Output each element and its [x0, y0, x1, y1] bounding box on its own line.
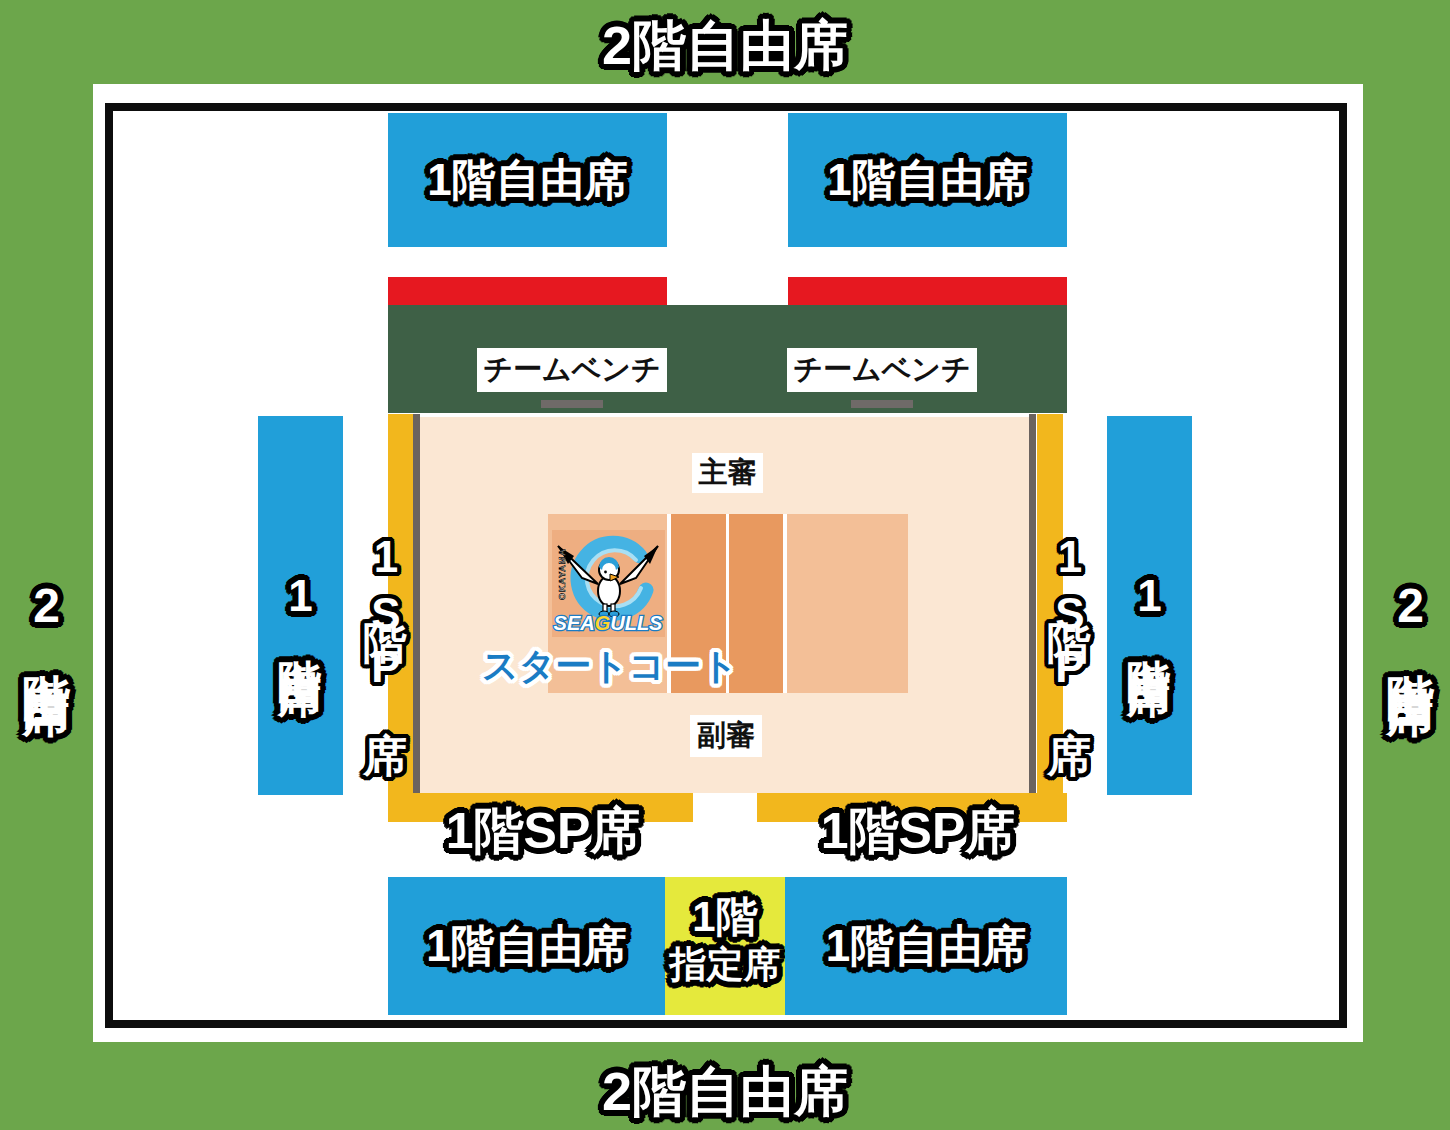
seat-label: 1階自由席 [427, 151, 627, 210]
red-strip-right [788, 277, 1067, 305]
assistant-referee-text: 副審 [697, 716, 755, 756]
logo-okayama-text: OKAYAMA [557, 548, 567, 600]
reserved-seat-label-line2: 指定席 [665, 941, 785, 989]
seat-block-floor1-reserved: 1階 指定席 [665, 877, 785, 1015]
team-bench-label-right: チームベンチ [787, 348, 977, 392]
seat-label: 1階自由席 [426, 917, 626, 976]
second-floor-label-left: 2階自由席 [14, 579, 78, 652]
seat-block-floor1-free-bottom-right: 1階自由席 [785, 877, 1067, 1015]
seat-label: 1階自由席 [827, 151, 1027, 210]
reserved-seat-label-line1: 1階 [665, 893, 785, 941]
sp-seat-label-bottom-right: 1階SP席 [788, 798, 1048, 865]
seat-label: 1階自由席 [271, 571, 330, 640]
logo-seagulls-text: SEAGULLS [554, 612, 664, 634]
sp-seat-label-right: 1階SP席 [1041, 532, 1100, 699]
red-strip-left [388, 277, 667, 305]
sp-seat-label-left: 1階SP席 [357, 532, 416, 699]
seat-block-floor1-free-top-right: 1階自由席 [788, 113, 1067, 247]
seagulls-logo-icon: OKAYAMA SEAGULLS [552, 530, 665, 637]
logo-sea: SEA [554, 612, 595, 634]
start-court-label: スタートコート [480, 642, 740, 691]
court-zone-right [787, 514, 908, 693]
chief-referee-label: 主審 [692, 453, 763, 493]
seat-block-floor1-free-left: 1階自由席 [258, 416, 343, 795]
seat-block-floor1-free-right: 1階自由席 [1107, 416, 1192, 795]
team-bench-text: チームベンチ [483, 350, 660, 390]
seat-block-floor1-free-top-left: 1階自由席 [388, 113, 667, 247]
second-floor-label-top: 2階自由席 [0, 10, 1450, 83]
second-floor-label-right: 2階自由席 [1378, 579, 1442, 652]
seat-block-floor1-free-bottom-left: 1階自由席 [388, 877, 665, 1015]
seagulls-logo: OKAYAMA SEAGULLS [552, 530, 665, 637]
bench-marker-right [851, 400, 913, 408]
seat-label: 1階自由席 [826, 917, 1026, 976]
second-floor-label-bottom: 2階自由席 [0, 1056, 1450, 1129]
chief-referee-text: 主審 [699, 453, 757, 493]
logo-ulls: ULLS [610, 612, 663, 634]
bench-marker-left [541, 400, 603, 408]
team-bench-label-left: チームベンチ [477, 348, 667, 392]
logo-g: G [595, 612, 611, 634]
assistant-referee-label: 副審 [690, 715, 762, 757]
team-bench-text: チームベンチ [793, 350, 970, 390]
sp-seat-label-bottom-left: 1階SP席 [413, 798, 673, 865]
seat-label: 1階自由席 [1120, 571, 1179, 640]
arena-seating-map: 2階自由席 2階自由席 2階自由席 2階自由席 1階自由席 1階自由席 チームベ… [0, 0, 1450, 1130]
court-edge-line-right [1029, 414, 1036, 793]
